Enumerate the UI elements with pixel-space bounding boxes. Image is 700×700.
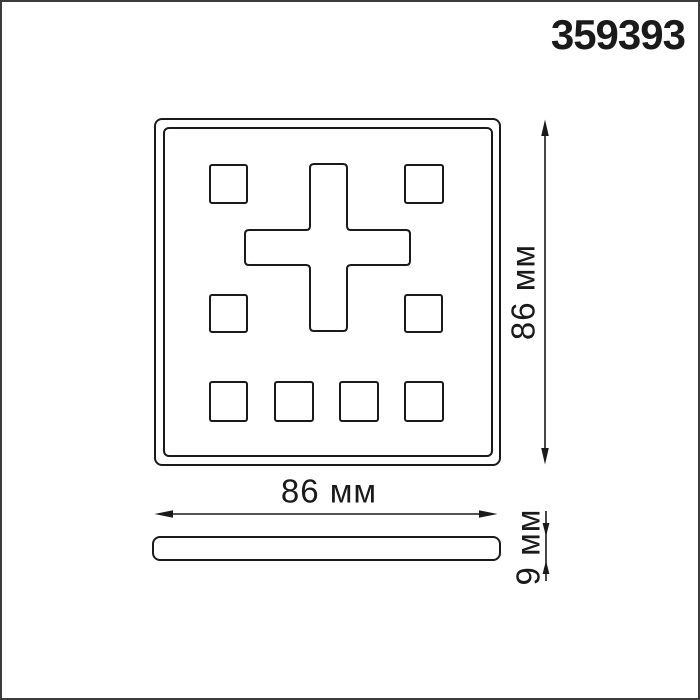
cutout-square-top-right [405, 165, 443, 203]
technical-drawing-page: 359393 [0, 0, 700, 700]
width-dimension-label: 86 мм [281, 475, 377, 508]
cutout-square-bottom-2 [275, 382, 313, 421]
drawing-lineart [2, 2, 700, 700]
depth-dimension-label: 9 мм [512, 509, 545, 586]
cutout-square-top-left [210, 165, 247, 203]
cutout-square-bottom-1 [210, 382, 247, 421]
front-view-outer-outline [155, 119, 500, 465]
height-dimension-label: 86 мм [507, 244, 540, 340]
cutout-square-middle-right [405, 295, 442, 332]
width-dimension-arrow [155, 510, 498, 518]
cutout-square-middle-left [210, 295, 247, 332]
cutout-center-cross [245, 164, 410, 331]
height-dimension-arrow [541, 120, 549, 465]
side-view-outline [153, 537, 500, 560]
cutout-square-bottom-3 [340, 382, 378, 421]
cutout-square-bottom-4 [405, 382, 443, 421]
